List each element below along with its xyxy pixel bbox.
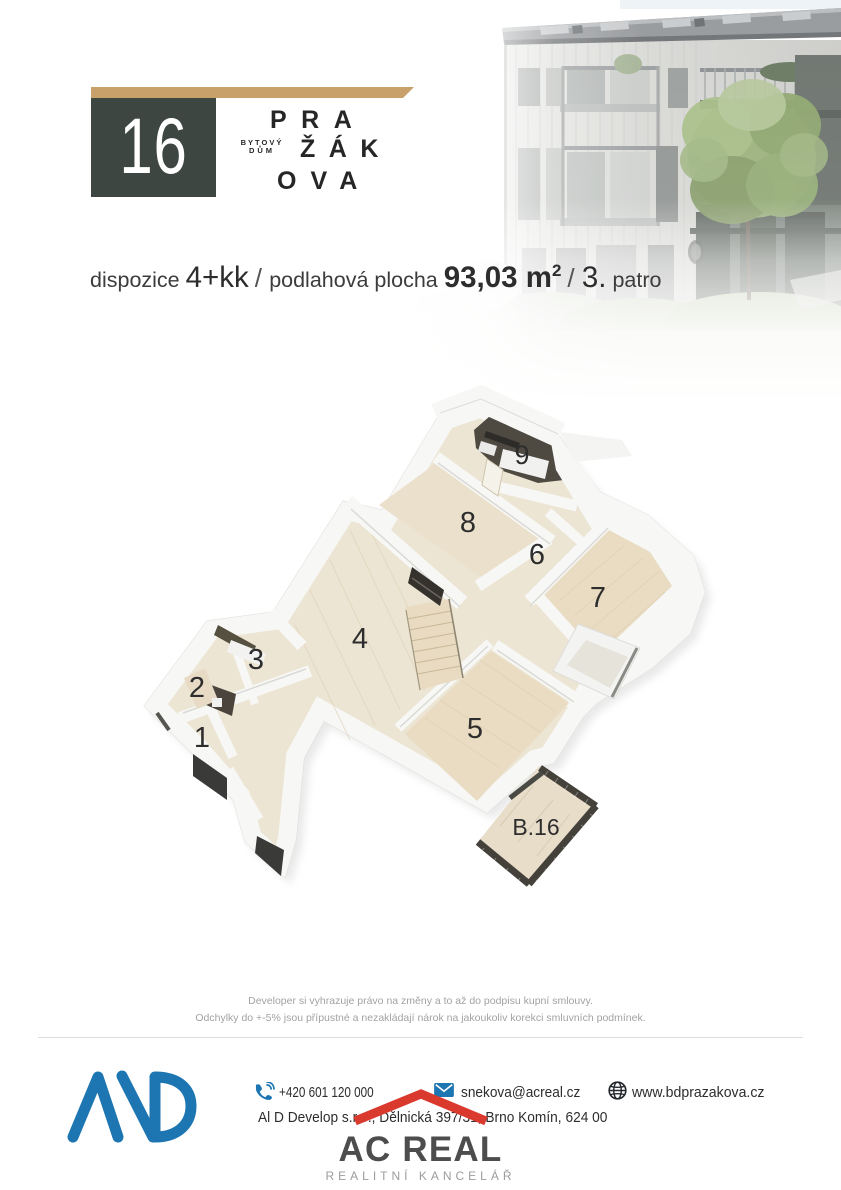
svg-text:5: 5 [467,713,483,745]
svg-text:4: 4 [352,623,368,655]
svg-text:9: 9 [514,440,529,470]
svg-text:1: 1 [194,722,210,754]
svg-text:3: 3 [248,644,264,676]
svg-text:7: 7 [590,582,606,614]
svg-text:6: 6 [529,539,545,571]
svg-text:8: 8 [460,507,476,539]
svg-text:B.16: B.16 [512,814,559,840]
svg-text:2: 2 [189,672,205,704]
